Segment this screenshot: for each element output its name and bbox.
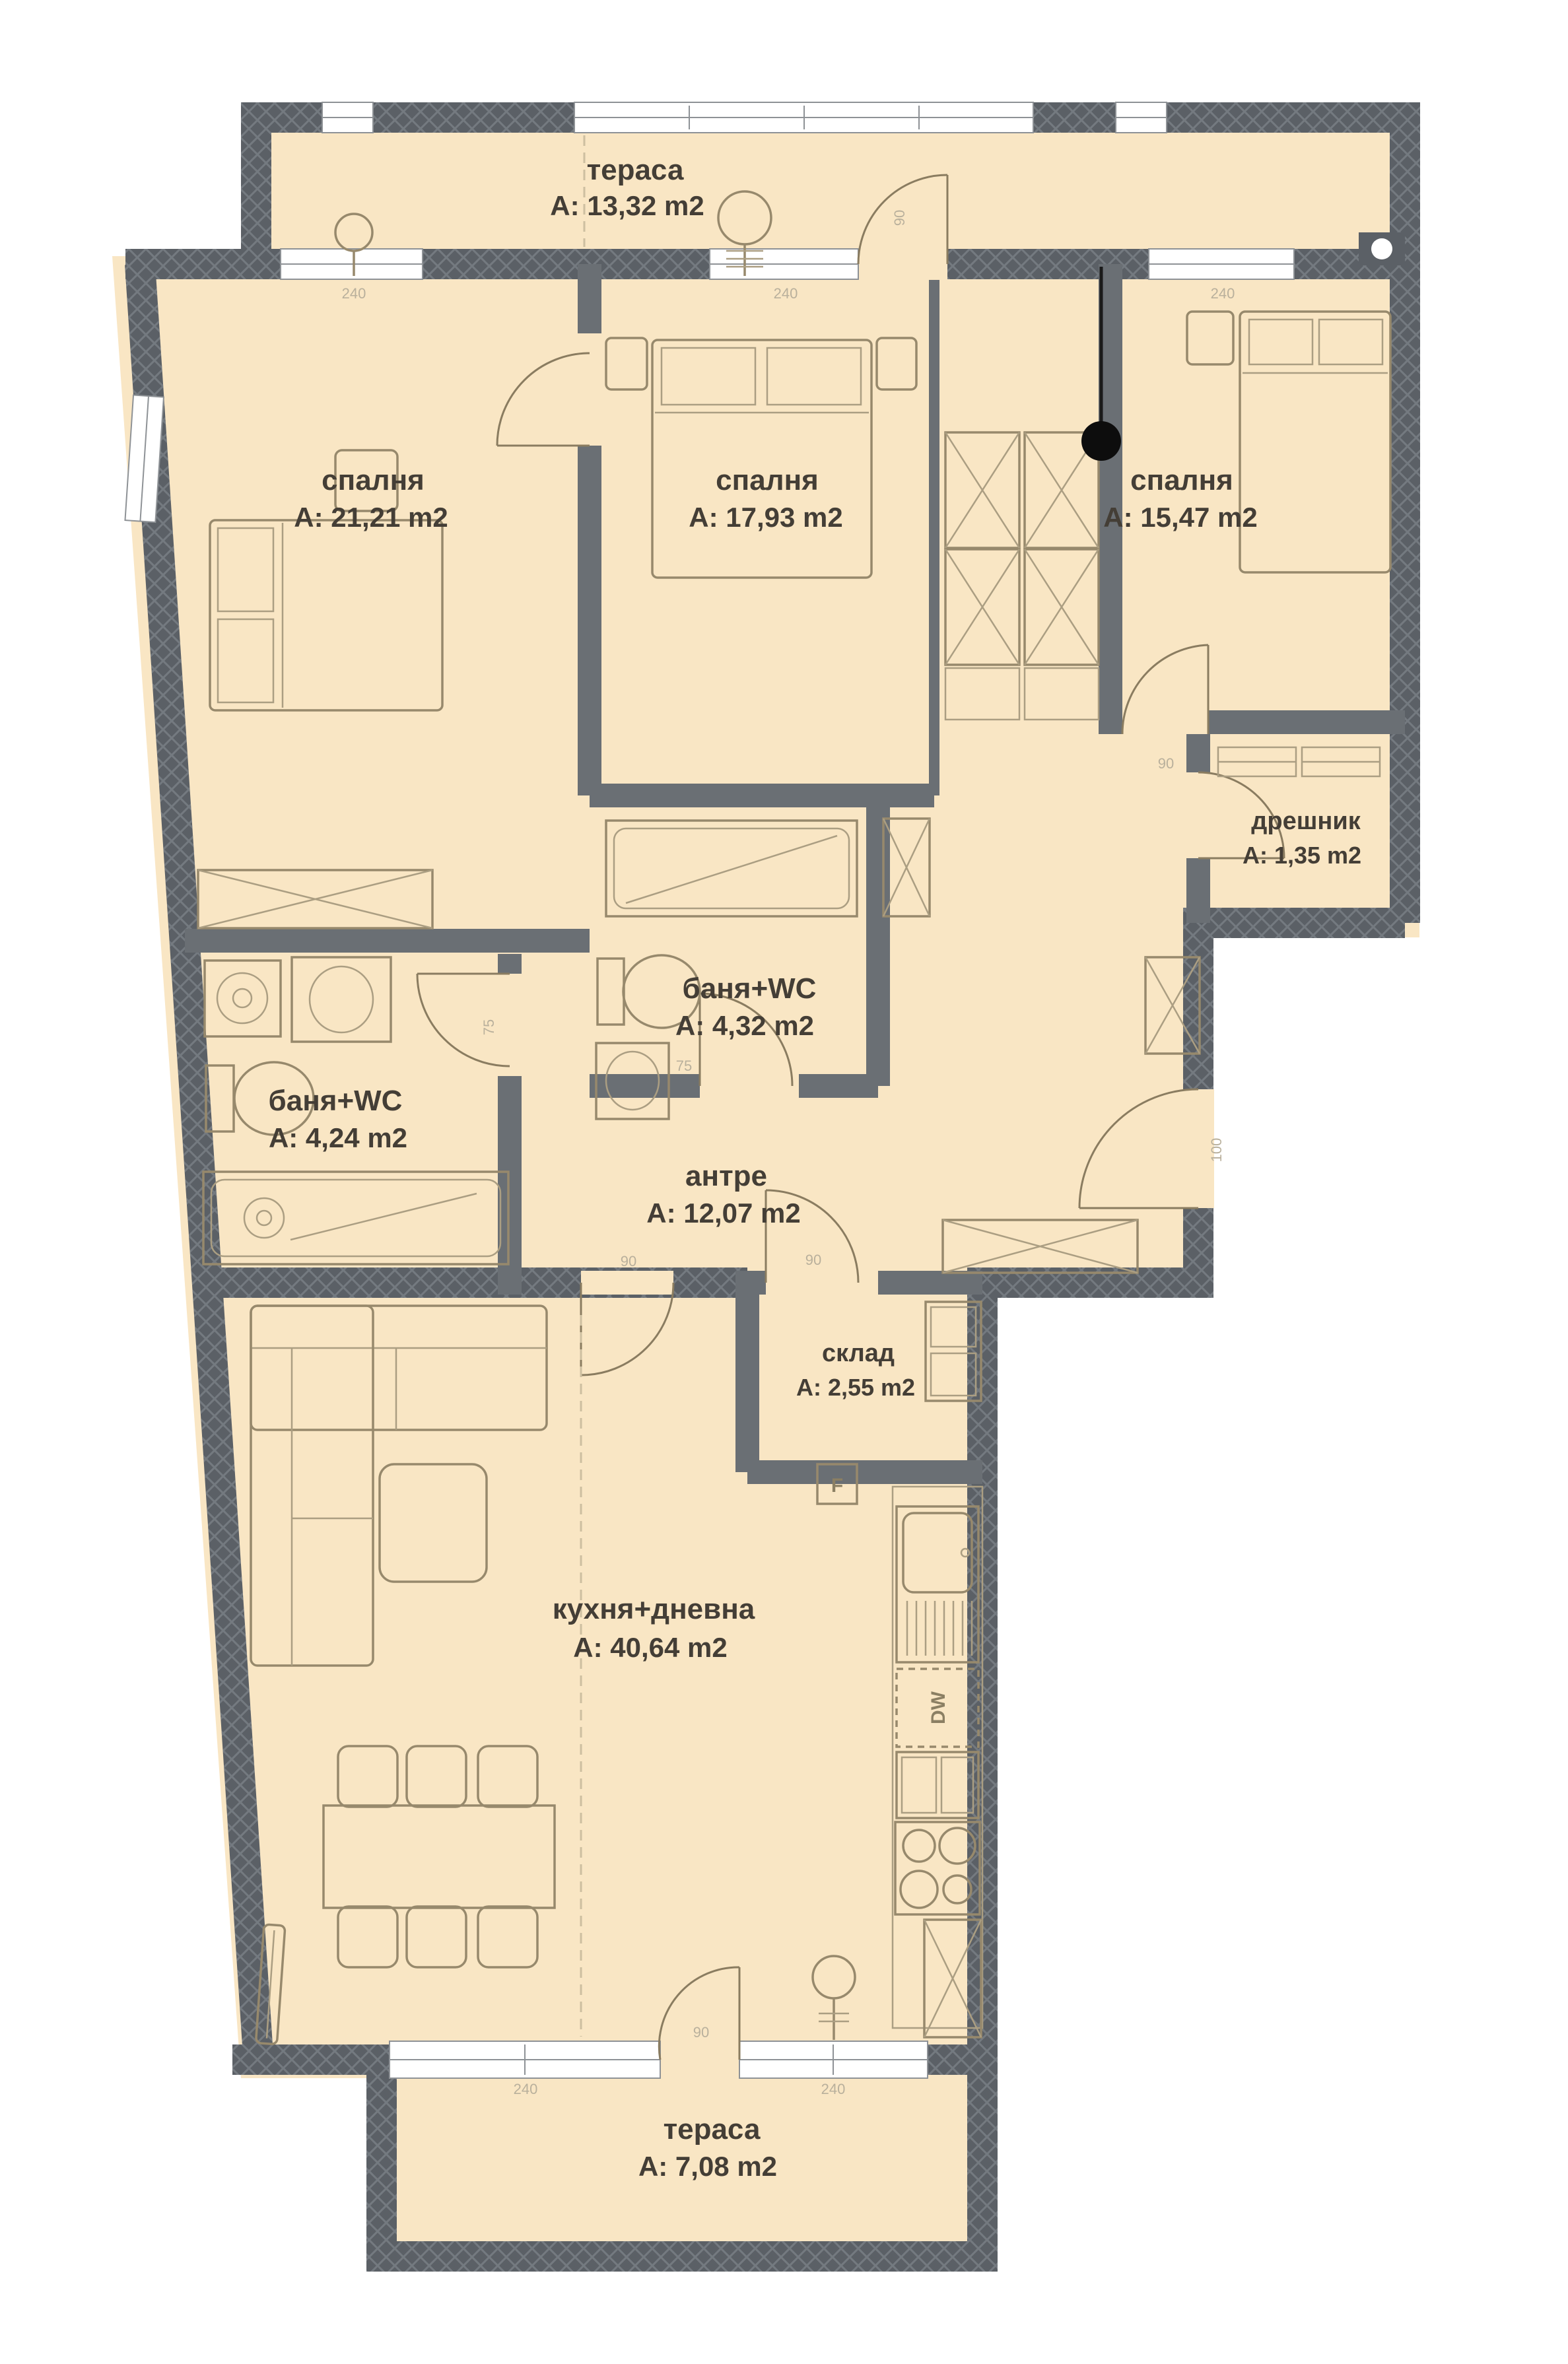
room-area: A: 2,55 m2 bbox=[796, 1374, 915, 1401]
svg-text:90: 90 bbox=[1158, 755, 1174, 772]
terrace-pillar bbox=[1359, 232, 1405, 265]
terrace-top-window bbox=[574, 102, 1033, 133]
bedroom-3-window bbox=[1149, 249, 1294, 279]
terrace-slit-window bbox=[322, 102, 373, 133]
terrace-slit-window bbox=[1116, 102, 1167, 133]
living-room-window bbox=[739, 2041, 928, 2078]
room-name: баня+WC bbox=[269, 1085, 403, 1117]
room-name: тераса bbox=[664, 2113, 761, 2145]
room-area: A: 7,08 m2 bbox=[638, 2151, 777, 2182]
bedroom-2-window bbox=[710, 249, 858, 279]
room-area: A: 1,35 m2 bbox=[1243, 842, 1361, 869]
room-name: склад bbox=[822, 1339, 895, 1367]
svg-text:75: 75 bbox=[481, 1019, 497, 1035]
entrance-marker-dot bbox=[1081, 421, 1121, 461]
fridge-label: F bbox=[831, 1475, 843, 1497]
svg-text:90: 90 bbox=[621, 1253, 636, 1269]
svg-text:90: 90 bbox=[805, 1252, 821, 1268]
room-name: спалня bbox=[716, 464, 819, 496]
room-area: A: 15,47 m2 bbox=[1103, 502, 1257, 533]
room-name: тераса bbox=[587, 154, 684, 186]
floor-plan-page: F DW bbox=[0, 0, 1568, 2364]
svg-text:75: 75 bbox=[676, 1058, 692, 1074]
room-name: дрешник bbox=[1251, 807, 1361, 835]
bedroom-1-window bbox=[281, 249, 423, 279]
svg-text:240: 240 bbox=[774, 285, 798, 302]
room-name: антре bbox=[685, 1160, 767, 1192]
room-area: A: 4,32 m2 bbox=[675, 1010, 814, 1041]
room-area: A: 17,93 m2 bbox=[689, 502, 842, 533]
room-area: A: 21,21 m2 bbox=[294, 502, 448, 533]
room-name: баня+WC bbox=[683, 972, 817, 1005]
svg-text:240: 240 bbox=[821, 2081, 846, 2097]
room-name: кухня+дневна bbox=[553, 1593, 755, 1625]
svg-text:240: 240 bbox=[514, 2081, 538, 2097]
room-area: A: 13,32 m2 bbox=[550, 190, 704, 221]
room-name: спалня bbox=[1130, 464, 1233, 496]
dishwasher-label: DW bbox=[928, 1691, 949, 1724]
svg-text:90: 90 bbox=[891, 210, 908, 226]
room-area: A: 12,07 m2 bbox=[646, 1198, 800, 1229]
floor-plan-svg: F DW bbox=[0, 0, 1568, 2364]
living-room-window bbox=[390, 2041, 660, 2078]
svg-text:90: 90 bbox=[693, 2024, 709, 2041]
svg-text:100: 100 bbox=[1208, 1138, 1225, 1163]
svg-text:240: 240 bbox=[1211, 285, 1235, 302]
room-area: A: 4,24 m2 bbox=[269, 1122, 407, 1153]
room-area: A: 40,64 m2 bbox=[573, 1632, 727, 1663]
room-name: спалня bbox=[322, 464, 425, 496]
svg-text:240: 240 bbox=[342, 285, 366, 302]
